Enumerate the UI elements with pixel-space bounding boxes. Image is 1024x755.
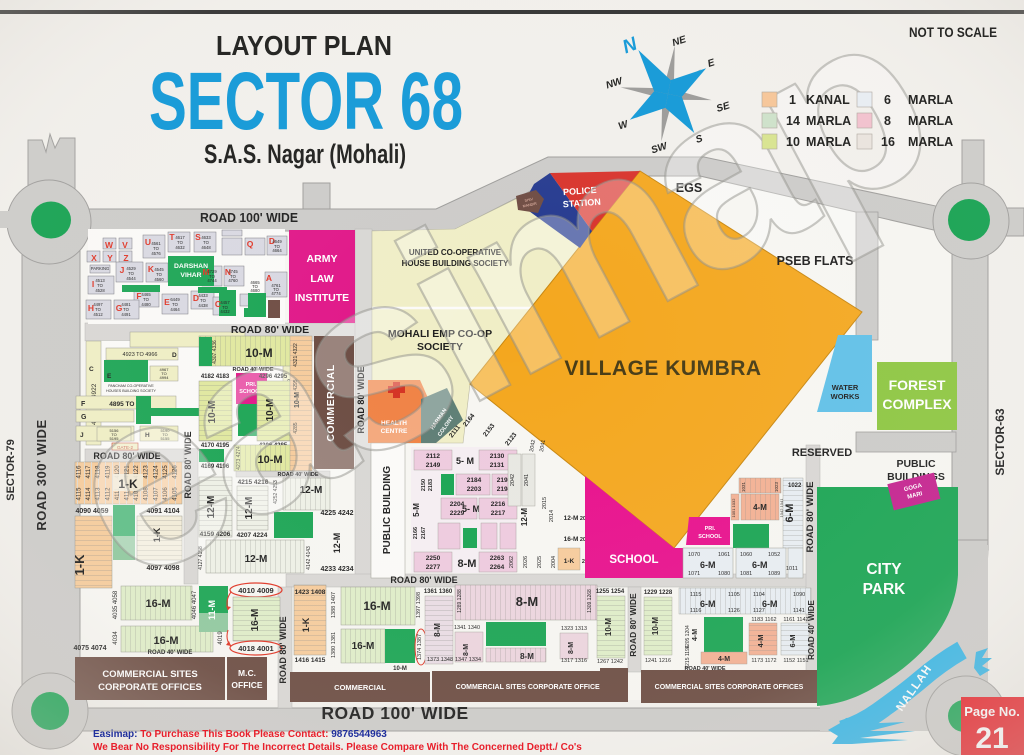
svg-text:KANAL: KANAL [806, 93, 850, 107]
svg-text:1: 1 [789, 93, 796, 107]
svg-text:MARLA: MARLA [908, 93, 953, 107]
svg-text:6: 6 [884, 93, 891, 107]
svg-text:14: 14 [786, 114, 800, 128]
svg-text:MARLA: MARLA [908, 114, 953, 128]
svg-text:MARLA: MARLA [806, 114, 851, 128]
svg-text:NOT TO SCALE: NOT TO SCALE [909, 25, 997, 40]
svg-text:MARLA: MARLA [908, 135, 953, 149]
svg-text:MARLA: MARLA [806, 135, 851, 149]
svg-text:S.A.S. Nagar (Mohali): S.A.S. Nagar (Mohali) [204, 139, 406, 169]
svg-text:16: 16 [881, 135, 895, 149]
svg-text:8: 8 [884, 114, 891, 128]
svg-text:Easimap: To Purchase This Book: Easimap: To Purchase This Book Please Co… [93, 729, 387, 740]
svg-text:SECTOR 68: SECTOR 68 [149, 56, 463, 147]
svg-text:10: 10 [786, 135, 800, 149]
svg-text:We Bear No Responsibility For: We Bear No Responsibility For The Incorr… [93, 742, 582, 753]
